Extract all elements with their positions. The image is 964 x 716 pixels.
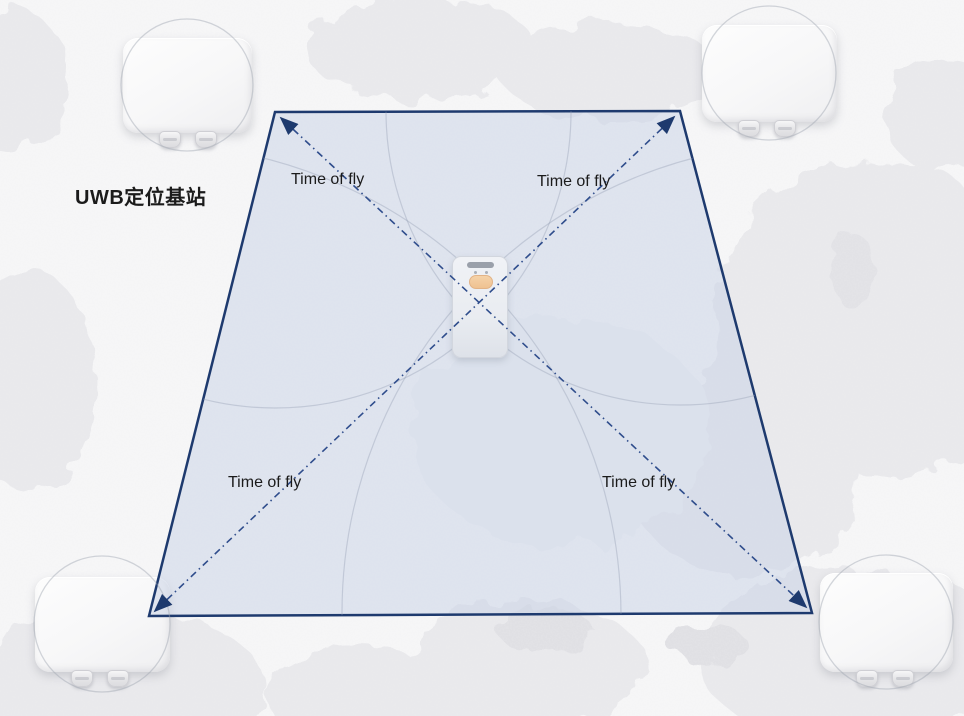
tof-label-top-right: Time of fly bbox=[537, 173, 610, 191]
tof-label-top-left: Time of fly bbox=[291, 171, 364, 189]
tof-line-diagonal-tr-bl bbox=[155, 117, 674, 611]
slide-canvas: UWB定位基站 Time of fly Time of fly Time of … bbox=[0, 0, 964, 716]
tof-label-bottom-left: Time of fly bbox=[228, 474, 301, 492]
tof-line-diagonal-tl-br bbox=[281, 118, 806, 607]
station-label: UWB定位基站 bbox=[75, 181, 206, 210]
tof-label-bottom-right: Time of fly bbox=[602, 474, 675, 492]
tof-measurement-lines bbox=[0, 0, 964, 716]
